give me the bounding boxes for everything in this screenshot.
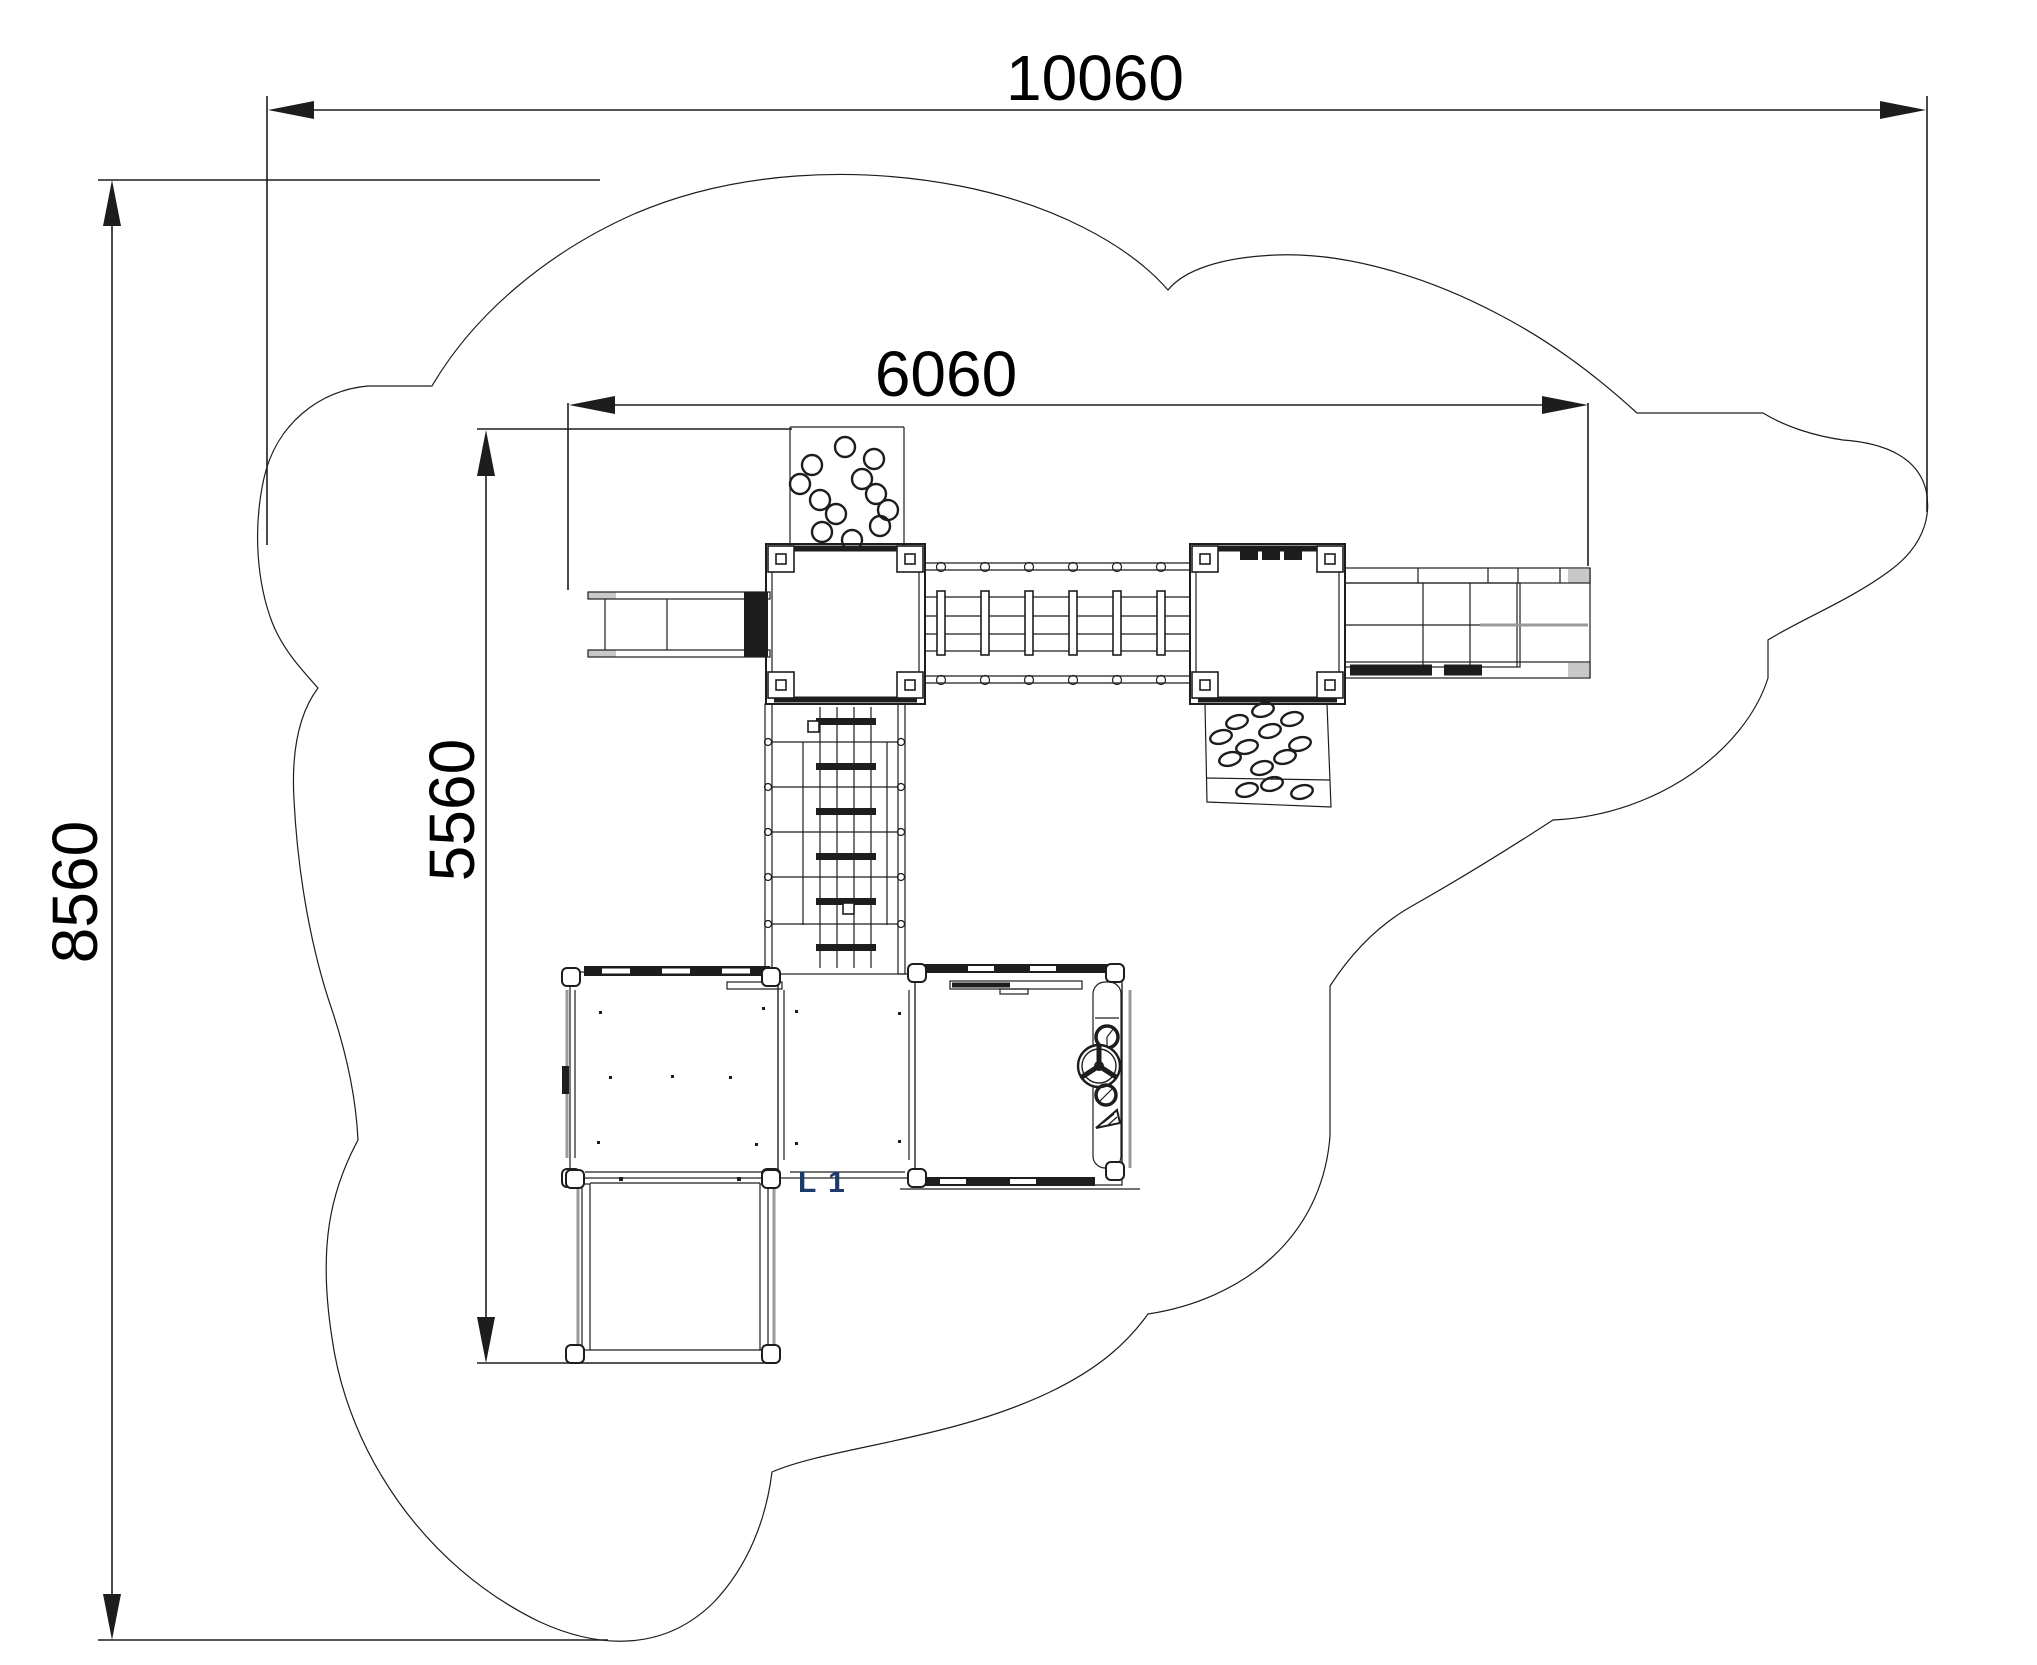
bridge-post-caps: [937, 563, 1166, 685]
dimension-overall-width: 10060: [267, 42, 1927, 545]
platform-lower-right: [900, 964, 1140, 1189]
slide-entry-section: [744, 592, 768, 657]
bridge-rungs: [937, 591, 1165, 655]
bridge-monkey-bars: [925, 563, 1190, 685]
door-handle: [562, 1066, 569, 1094]
dim-label-inner-width: 6060: [875, 338, 1017, 410]
slide-left: [588, 592, 770, 657]
platform-lower-middle: [727, 974, 915, 1178]
ramp-right: [1345, 568, 1590, 678]
dimension-inner-depth: 5560: [416, 429, 792, 1363]
platform-tower-right: [1190, 544, 1345, 704]
climbing-wall-right: [1205, 701, 1331, 807]
dim-label-overall-depth: 8560: [39, 821, 111, 963]
dimension-inner-width: 6060: [568, 338, 1588, 590]
net-climber: [765, 704, 906, 974]
floor-dots: [597, 1007, 765, 1146]
ladder-rungs: [816, 718, 876, 951]
dim-arrow-right: [1880, 101, 1926, 119]
slide-id-label: L 1: [798, 1166, 847, 1199]
dim-label-inner-depth: 5560: [416, 739, 488, 881]
climbing-wall-top: [790, 427, 904, 550]
technical-drawing-canvas: 10060 6060 8560 5560: [0, 0, 2037, 1665]
steering-wheel: [1078, 1045, 1120, 1087]
corner-posts: [1192, 546, 1343, 698]
dim-arrow-left: [268, 101, 314, 119]
platform-lower-left: [562, 966, 778, 1178]
climbing-holds: [790, 437, 898, 550]
play-panel: [1078, 982, 1121, 1168]
slide-posts: [566, 1170, 780, 1363]
dim-label-overall-width: 10060: [1006, 42, 1184, 114]
corner-posts: [768, 546, 923, 698]
floor-dots: [795, 1010, 901, 1145]
small-wheel-bottom: [1096, 1085, 1116, 1105]
safety-zone-outline: [258, 174, 1928, 1641]
slide-bottom: L 1: [566, 1166, 847, 1363]
climbing-holds: [1209, 701, 1315, 801]
platform-tower-center: [766, 544, 925, 704]
pennant-icon: [1096, 1110, 1120, 1128]
